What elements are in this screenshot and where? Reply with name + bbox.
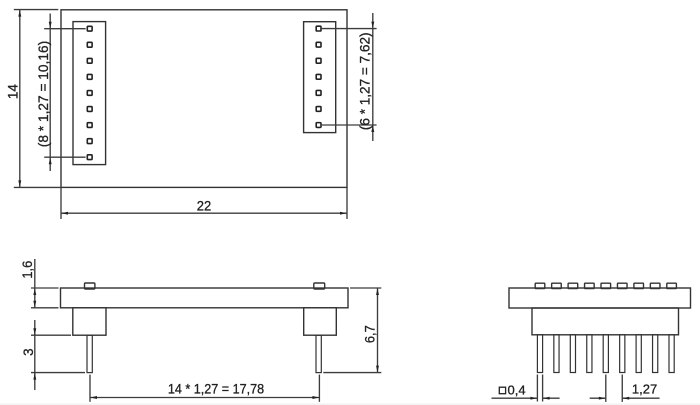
svg-text:14 * 1,27 = 17,78: 14 * 1,27 = 17,78 bbox=[168, 381, 264, 397]
svg-text:22: 22 bbox=[197, 198, 211, 214]
svg-text:(8 * 1,27 = 10,16): (8 * 1,27 = 10,16) bbox=[35, 41, 51, 147]
svg-text:3: 3 bbox=[21, 348, 36, 356]
svg-text:14: 14 bbox=[5, 84, 20, 99]
svg-text:0,4: 0,4 bbox=[508, 383, 526, 398]
svg-text:1,27: 1,27 bbox=[632, 382, 657, 397]
svg-text:(6 * 1,27 = 7,62): (6 * 1,27 = 7,62) bbox=[357, 32, 372, 130]
svg-text:1,6: 1,6 bbox=[19, 261, 35, 279]
svg-text:6,7: 6,7 bbox=[362, 325, 378, 343]
